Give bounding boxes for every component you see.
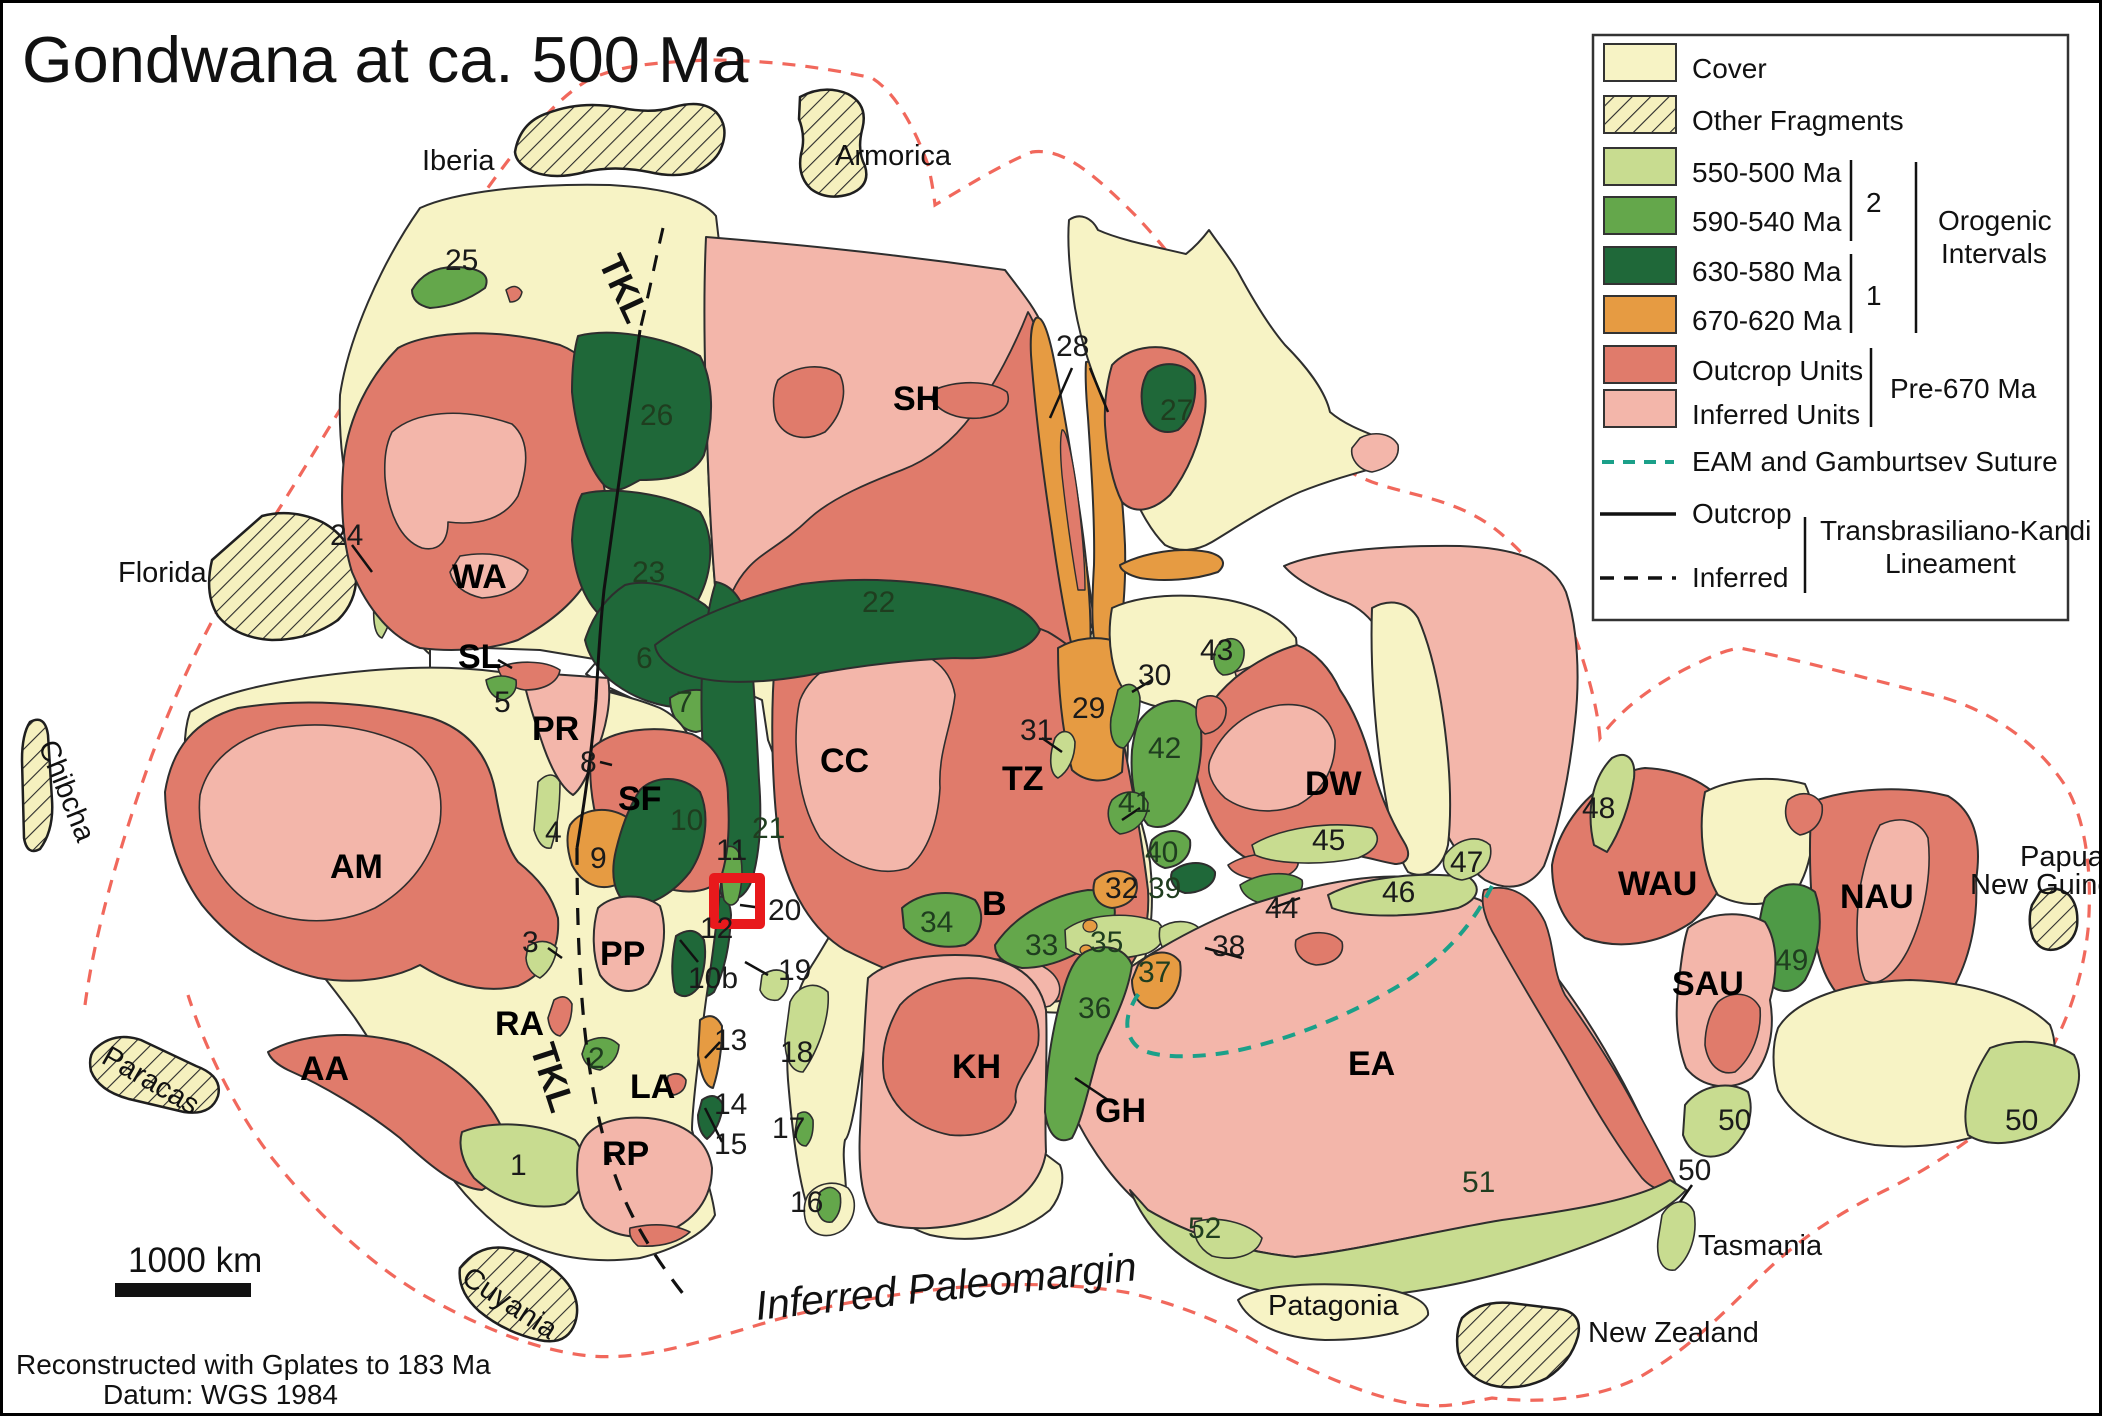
svg-text:44: 44 [1265, 892, 1298, 925]
svg-text:670-620 Ma: 670-620 Ma [1692, 305, 1842, 336]
svg-text:8: 8 [580, 746, 597, 779]
svg-text:9: 9 [590, 842, 607, 875]
svg-text:10: 10 [670, 804, 703, 837]
svg-text:GH: GH [1095, 1092, 1146, 1130]
svg-text:RP: RP [602, 1135, 649, 1173]
svg-text:1: 1 [1866, 280, 1882, 311]
svg-text:46: 46 [1382, 876, 1415, 909]
svg-text:45: 45 [1312, 824, 1345, 857]
svg-text:WAU: WAU [1618, 865, 1697, 903]
svg-text:Intervals: Intervals [1941, 238, 2047, 269]
svg-text:33: 33 [1025, 929, 1058, 962]
svg-text:EA: EA [1348, 1045, 1395, 1083]
svg-text:2: 2 [1866, 187, 1882, 218]
svg-text:1000 km: 1000 km [128, 1241, 262, 1280]
svg-text:Inferred Units: Inferred Units [1692, 399, 1860, 430]
svg-text:SL: SL [458, 638, 501, 676]
svg-text:B: B [982, 885, 1007, 923]
svg-text:29: 29 [1072, 692, 1105, 725]
svg-text:23: 23 [632, 556, 665, 589]
svg-text:10b: 10b [688, 962, 738, 995]
svg-text:37: 37 [1138, 956, 1171, 989]
svg-text:Gondwana at ca. 500 Ma: Gondwana at ca. 500 Ma [22, 23, 749, 96]
svg-text:4: 4 [545, 816, 562, 849]
svg-text:2: 2 [588, 1042, 605, 1075]
svg-text:Armorica: Armorica [835, 140, 952, 172]
svg-text:39: 39 [1148, 872, 1181, 905]
svg-text:SF: SF [618, 780, 661, 818]
svg-text:AM: AM [330, 848, 383, 886]
svg-text:WA: WA [452, 558, 507, 596]
svg-text:43: 43 [1200, 634, 1233, 667]
svg-text:DW: DW [1305, 765, 1363, 803]
svg-text:28: 28 [1056, 330, 1089, 363]
svg-text:34: 34 [920, 906, 953, 939]
svg-text:40: 40 [1145, 836, 1178, 869]
svg-text:630-580 Ma: 630-580 Ma [1692, 256, 1842, 287]
svg-text:13: 13 [714, 1024, 747, 1057]
svg-text:Tasmania: Tasmania [1698, 1230, 1823, 1262]
svg-text:Cover: Cover [1692, 53, 1767, 84]
svg-text:Transbrasiliano-Kandi: Transbrasiliano-Kandi [1820, 515, 2091, 546]
svg-text:50: 50 [1718, 1104, 1751, 1137]
svg-text:31: 31 [1020, 714, 1053, 747]
svg-text:Patagonia: Patagonia [1268, 1290, 1399, 1322]
svg-text:35: 35 [1090, 926, 1123, 959]
svg-text:22: 22 [862, 586, 895, 619]
svg-text:24: 24 [330, 519, 363, 552]
svg-text:47: 47 [1450, 846, 1483, 879]
svg-text:Inferred: Inferred [1692, 562, 1789, 593]
svg-text:50: 50 [1678, 1154, 1711, 1187]
svg-text:New Zealand: New Zealand [1588, 1317, 1759, 1349]
svg-text:550-500 Ma: 550-500 Ma [1692, 157, 1842, 188]
svg-text:3: 3 [522, 926, 539, 959]
svg-text:Reconstructed with Gplates to: Reconstructed with Gplates to 183 Ma [16, 1349, 491, 1380]
svg-text:17: 17 [772, 1112, 805, 1145]
svg-text:18: 18 [780, 1036, 813, 1069]
svg-text:50: 50 [2005, 1104, 2038, 1137]
svg-text:RA: RA [495, 1005, 544, 1043]
svg-text:EAM and Gamburtsev Suture: EAM and Gamburtsev Suture [1692, 446, 2058, 477]
svg-text:TZ: TZ [1002, 760, 1044, 798]
svg-text:AA: AA [300, 1050, 349, 1088]
svg-text:20: 20 [768, 894, 801, 927]
svg-text:Other Fragments: Other Fragments [1692, 105, 1904, 136]
svg-text:49: 49 [1775, 944, 1808, 977]
svg-text:52: 52 [1188, 1212, 1221, 1245]
svg-text:15: 15 [714, 1128, 747, 1161]
svg-text:21: 21 [752, 812, 785, 845]
svg-text:30: 30 [1138, 659, 1171, 692]
svg-text:16: 16 [790, 1186, 823, 1219]
svg-text:LA: LA [630, 1068, 675, 1106]
svg-text:48: 48 [1582, 792, 1615, 825]
svg-text:25: 25 [445, 244, 478, 277]
svg-text:New Guinea: New Guinea [1970, 869, 2102, 901]
svg-text:1: 1 [510, 1149, 527, 1182]
svg-text:36: 36 [1078, 992, 1111, 1025]
svg-text:PP: PP [600, 935, 645, 973]
svg-text:27: 27 [1160, 394, 1193, 427]
svg-text:51: 51 [1462, 1166, 1495, 1199]
svg-text:32: 32 [1105, 872, 1138, 905]
svg-text:590-540 Ma: 590-540 Ma [1692, 206, 1842, 237]
svg-text:Lineament: Lineament [1885, 548, 2016, 579]
svg-text:Outcrop: Outcrop [1692, 498, 1792, 529]
svg-text:41: 41 [1118, 786, 1151, 819]
svg-text:12: 12 [700, 912, 733, 945]
svg-text:NAU: NAU [1840, 878, 1914, 916]
svg-text:11: 11 [716, 834, 747, 867]
svg-text:7: 7 [676, 686, 693, 719]
svg-text:KH: KH [952, 1048, 1001, 1086]
svg-text:Orogenic: Orogenic [1938, 205, 2052, 236]
svg-text:Iberia: Iberia [422, 145, 495, 177]
svg-text:SAU: SAU [1672, 965, 1744, 1003]
svg-text:PR: PR [532, 710, 579, 748]
svg-text:14: 14 [714, 1088, 747, 1121]
svg-text:Florida: Florida [118, 557, 208, 589]
svg-text:Pre-670 Ma: Pre-670 Ma [1890, 373, 2037, 404]
svg-text:Datum: WGS 1984: Datum: WGS 1984 [103, 1379, 338, 1410]
svg-text:19: 19 [778, 954, 811, 987]
svg-text:Outcrop Units: Outcrop Units [1692, 355, 1863, 386]
svg-text:38: 38 [1212, 930, 1245, 963]
svg-text:5: 5 [494, 686, 511, 719]
svg-text:SH: SH [893, 380, 940, 418]
svg-text:6: 6 [636, 642, 653, 675]
svg-text:26: 26 [640, 399, 673, 432]
svg-text:CC: CC [820, 742, 869, 780]
svg-text:42: 42 [1148, 732, 1181, 765]
